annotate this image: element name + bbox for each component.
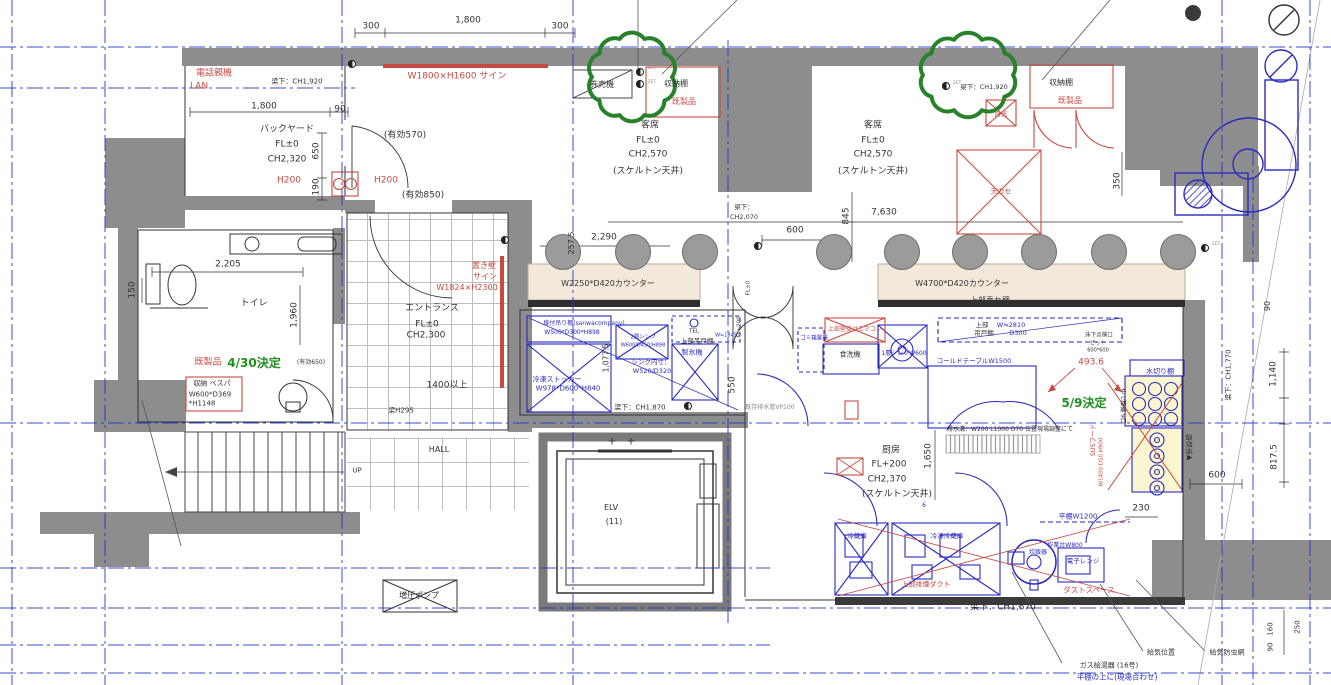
corner-symbols xyxy=(1185,5,1299,35)
floor-plan: 3001,800300電話親機LAN梁下：CH1,920W1800×H1600 … xyxy=(0,0,1331,685)
staircase xyxy=(165,432,345,512)
counter-stool-6 xyxy=(952,234,988,270)
counter-stool-9 xyxy=(1160,234,1196,270)
dimension-lines xyxy=(142,28,1289,655)
kitchen-equipment xyxy=(527,316,1184,595)
counter-stool-2 xyxy=(615,234,651,270)
plan-drawing xyxy=(0,0,1331,685)
counter-stool-5 xyxy=(884,234,920,270)
counter-stool-8 xyxy=(1091,234,1127,270)
counters xyxy=(528,264,1185,307)
walls xyxy=(40,48,1331,605)
drain-ditch-hatch xyxy=(946,435,1040,453)
booster-pump-box xyxy=(383,580,457,612)
counter-stool-4 xyxy=(816,234,852,270)
revision-cloud-2 xyxy=(921,33,1015,118)
counter-stool-7 xyxy=(1021,234,1057,270)
elevator-shaft xyxy=(543,437,727,607)
counter-stool-1 xyxy=(545,234,581,270)
counter-stool-3 xyxy=(682,234,718,270)
